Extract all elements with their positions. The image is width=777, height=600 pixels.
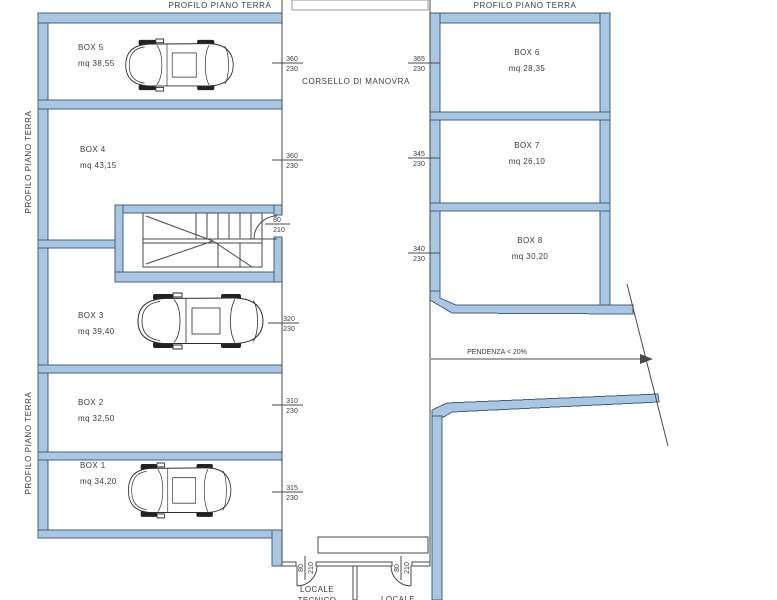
ramp-opening-top <box>292 0 428 10</box>
car-top-view <box>128 463 231 518</box>
dim-box4-h: 230 <box>286 163 298 170</box>
svg-text:210: 210 <box>404 562 411 574</box>
dim-box7-w: 345 <box>413 151 425 158</box>
dim-box7-h: 230 <box>413 161 425 168</box>
dim-box8-w: 340 <box>413 246 425 253</box>
svg-text:210: 210 <box>308 562 315 574</box>
box7-area: mq 26,10 <box>509 157 546 166</box>
profile-label-top-left: PROFILO PIANO TERRA <box>169 1 272 10</box>
box4-name: BOX 4 <box>80 145 106 154</box>
staircase <box>143 213 262 267</box>
box8-name: BOX 8 <box>517 236 543 245</box>
car-top-view <box>138 293 263 349</box>
dim-box8-h: 230 <box>413 256 425 263</box>
box5-area: mq 38,55 <box>78 59 115 68</box>
corridor-label: CORSELLO DI MANOVRA <box>302 77 410 86</box>
floor-plan-page: PENDENZA < 20% <box>0 0 777 600</box>
box2-area: mq 32,50 <box>78 414 115 423</box>
dim-box6-w: 365 <box>413 56 425 63</box>
profile-label-top-right: PROFILO PIANO TERRA <box>474 1 577 10</box>
dim-box3-h: 230 <box>283 326 295 333</box>
box5-name: BOX 5 <box>78 43 104 52</box>
box6-name: BOX 6 <box>514 48 540 57</box>
box7-name: BOX 7 <box>514 141 540 150</box>
svg-text:80: 80 <box>298 564 305 572</box>
box1-area: mq 34,20 <box>80 477 117 486</box>
car-top-view <box>126 39 234 91</box>
box3-area: mq 39,40 <box>78 327 115 336</box>
dim-box4-w: 360 <box>286 153 298 160</box>
profile-label-side-lower: PROFILO PIANO TERRA <box>24 392 33 495</box>
box3-name: BOX 3 <box>78 311 104 320</box>
dim-box1-h: 230 <box>286 495 298 502</box>
dim-box5-h: 230 <box>286 66 298 73</box>
room-tecnico-line1: LOCALE <box>300 585 334 594</box>
door-dimensions: 360 230 365 230 360 230 345 230 80 210 3… <box>265 56 440 580</box>
dim-stairdoor-w: 80 <box>273 217 281 224</box>
dim-box2-w: 310 <box>286 398 298 405</box>
ramp-slope-label: PENDENZA < 20% <box>467 349 527 356</box>
dim-stairdoor-h: 210 <box>273 227 285 234</box>
ventilation-grate <box>318 537 428 553</box>
box1-name: BOX 1 <box>80 461 106 470</box>
room-locale-line1: LOCALE <box>381 595 415 600</box>
box2-name: BOX 2 <box>78 398 104 407</box>
svg-text:80: 80 <box>394 564 401 572</box>
profile-label-side-upper: PROFILO PIANO TERRA <box>24 111 33 214</box>
box8-area: mq 30,20 <box>512 252 549 261</box>
dim-service-door-1: 80 210 <box>298 556 315 580</box>
room-tecnico-line2: TECNICO <box>298 596 337 600</box>
box4-area: mq 43,15 <box>80 161 117 170</box>
dim-box5-w: 360 <box>286 56 298 63</box>
floor-plan-drawing: PENDENZA < 20% <box>0 0 777 600</box>
dim-box1-w: 315 <box>286 485 298 492</box>
dim-box6-h: 230 <box>413 66 425 73</box>
walls <box>38 13 659 600</box>
dim-box2-h: 230 <box>286 408 298 415</box>
dim-service-door-2: 80 210 <box>394 556 411 580</box>
dim-box3-w: 320 <box>283 316 295 323</box>
box6-area: mq 28,35 <box>509 64 546 73</box>
